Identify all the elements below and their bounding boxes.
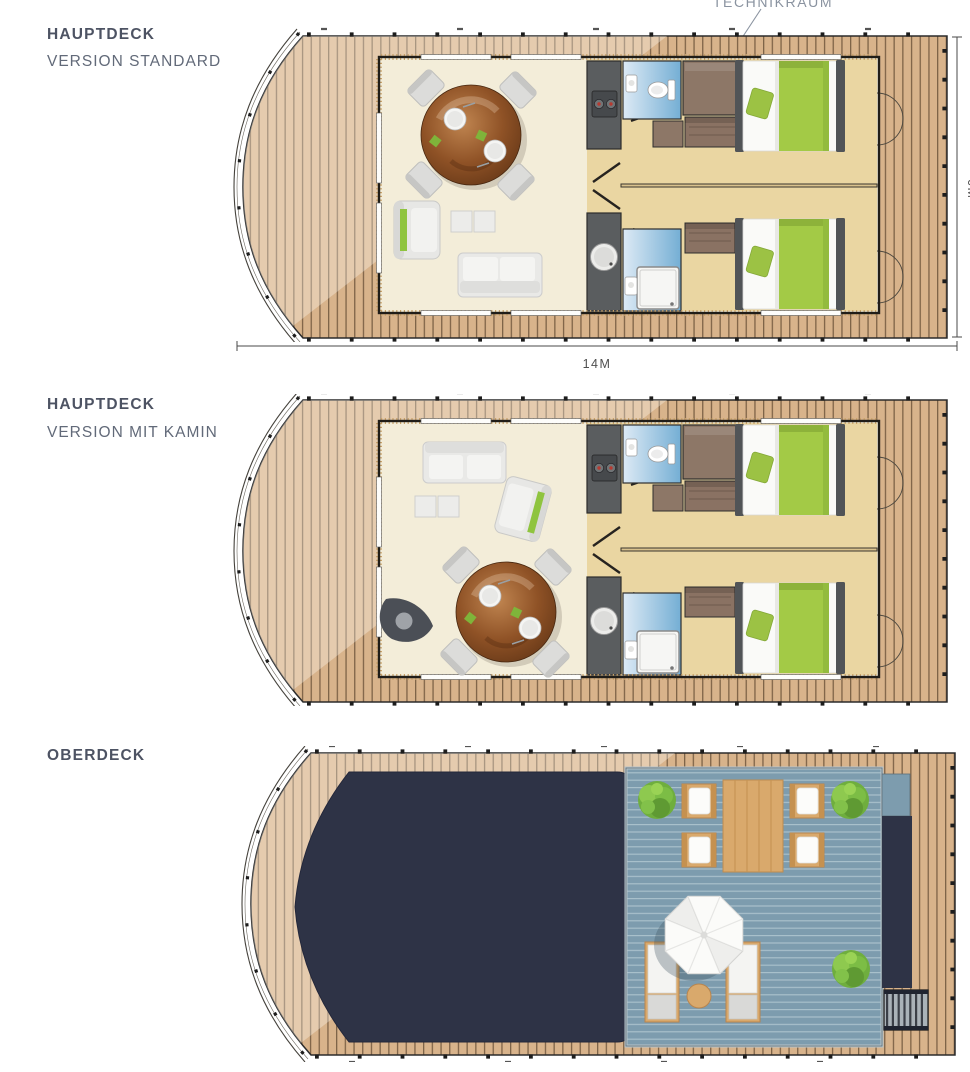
- cabin-interior: [587, 423, 903, 675]
- terrace-chair: [682, 784, 716, 818]
- sofa: [458, 253, 542, 297]
- dining-set: [404, 68, 538, 202]
- section-subtitle: VERSION STANDARD: [47, 53, 221, 71]
- cabin-interior: [587, 59, 903, 311]
- terrace-chair: [682, 833, 716, 867]
- oberdeck-floorplan: [241, 746, 959, 1062]
- hauptdeck-kamin-floorplan: [233, 394, 951, 706]
- width-dimension-text: 6M: [965, 179, 970, 199]
- length-dimension: 14M: [233, 340, 961, 374]
- side-table: [687, 984, 711, 1008]
- houseboat-floorplan-sheet: HAUPTDECK VERSION STANDARD TECHNIKRAUM: [0, 0, 970, 1072]
- terrace: [626, 768, 882, 1046]
- cabin-roof: [295, 772, 629, 1042]
- terrace-chair: [790, 833, 824, 867]
- stairs-ladder: [884, 990, 928, 1030]
- terrace-landing: [882, 774, 910, 816]
- section-title: HAUPTDECK: [47, 396, 155, 414]
- roof-panel: [882, 816, 912, 988]
- plant-bush: [832, 950, 870, 988]
- terrace-chair: [790, 784, 824, 818]
- terrace-dining-table: [723, 780, 783, 872]
- section-title: OBERDECK: [47, 747, 145, 765]
- sofa: [423, 442, 506, 483]
- section-title: HAUPTDECK: [47, 26, 155, 44]
- plant-bush: [831, 781, 869, 819]
- plant-bush: [638, 781, 676, 819]
- section-subtitle: VERSION MIT KAMIN: [47, 424, 218, 442]
- width-dimension: 6M: [947, 33, 970, 341]
- length-dimension-text: 14M: [583, 357, 612, 371]
- armchair: [394, 201, 440, 259]
- dining-set: [439, 545, 573, 679]
- hauptdeck-standard-floorplan: [233, 0, 951, 342]
